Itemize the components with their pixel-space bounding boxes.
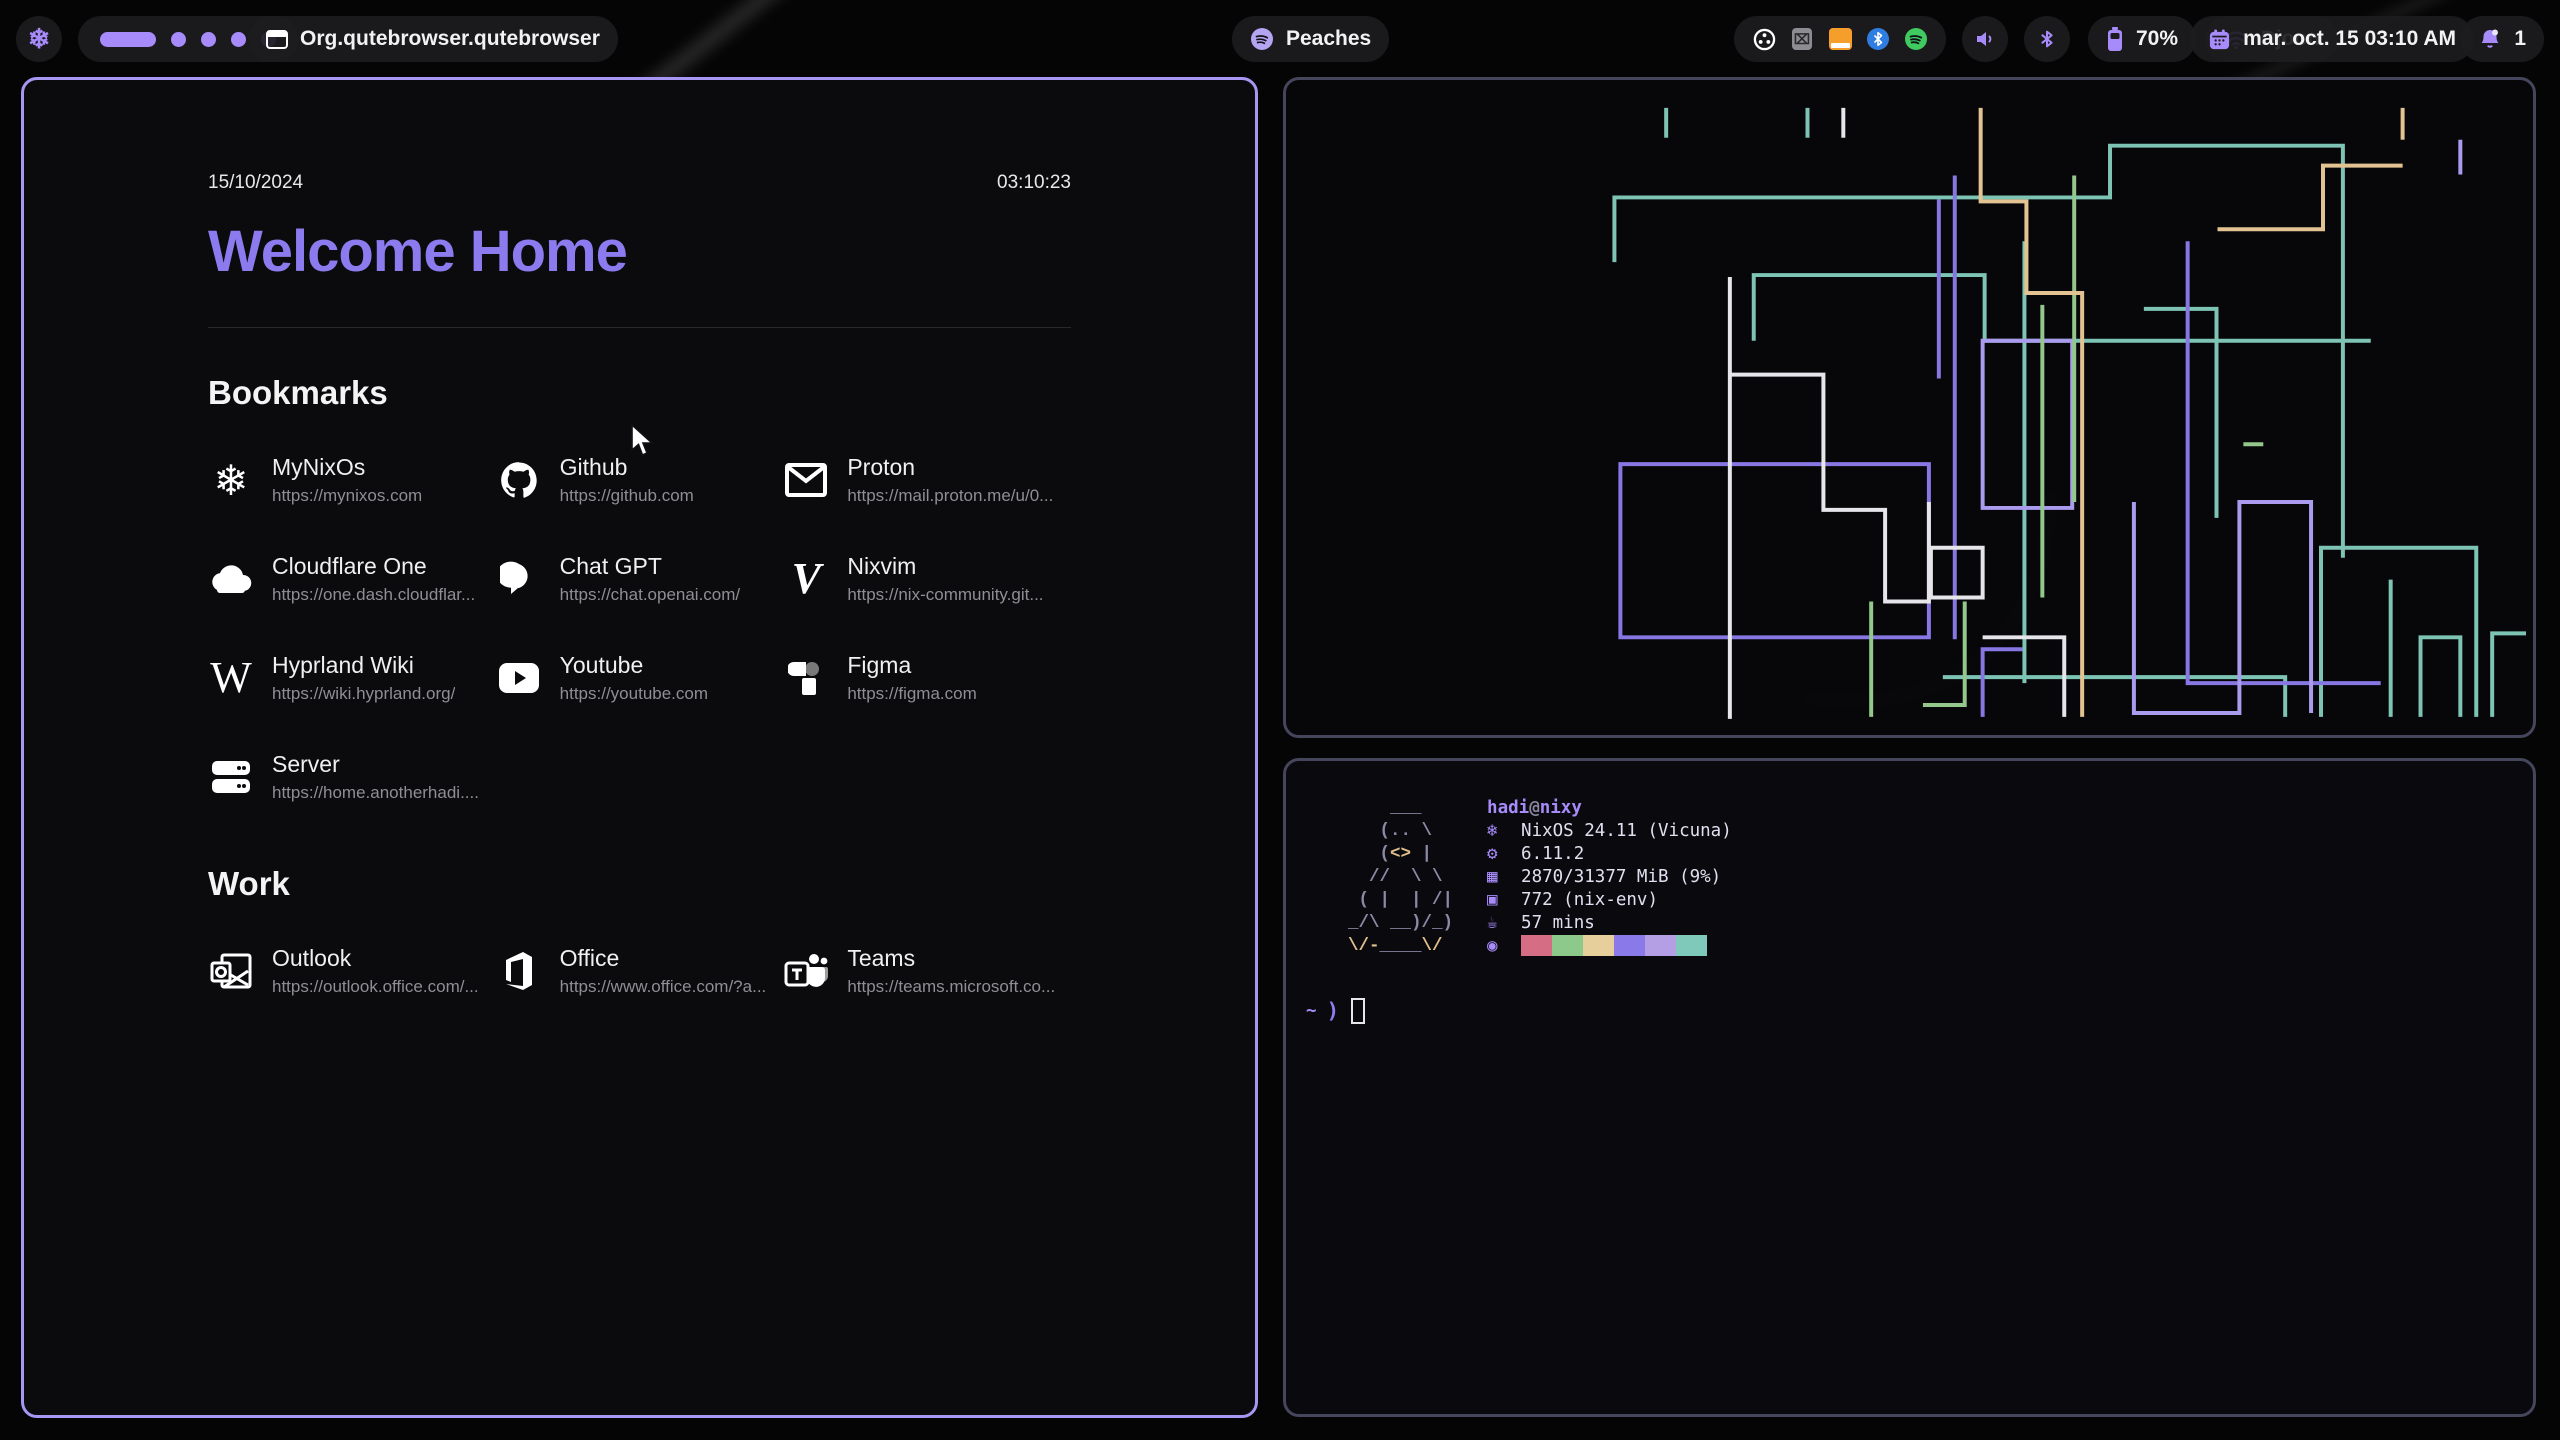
obs-tray-icon[interactable] — [1752, 27, 1776, 51]
fetch-palette-row: ◉ — [1487, 935, 1732, 958]
notifications-widget[interactable]: 1 — [2460, 16, 2544, 62]
spotify-icon — [1250, 27, 1274, 51]
divider — [208, 327, 1071, 328]
swatch-teal — [1676, 935, 1707, 956]
bookmark-outlook[interactable]: Outlook https://outlook.office.com/... — [208, 945, 496, 997]
window-icon — [266, 30, 288, 49]
volume-widget[interactable] — [1962, 16, 2008, 62]
startpage-clock: 03:10:23 — [997, 172, 1071, 194]
work-grid: Outlook https://outlook.office.com/... O… — [208, 945, 1071, 997]
swatch-green — [1552, 935, 1583, 956]
nixos-launcher-button[interactable]: ❄ — [16, 16, 62, 62]
bookmark-figma[interactable]: Figma https://figma.com — [783, 652, 1071, 704]
workspace-active[interactable] — [100, 32, 156, 47]
swatch-tan — [1583, 935, 1614, 956]
figma-icon — [783, 655, 829, 701]
bookmarks-grid: ❄ MyNixOs https://mynixos.com Github htt… — [208, 454, 1071, 803]
qutebrowser-window[interactable]: 15/10/2024 03:10:23 Welcome Home Bookmar… — [21, 77, 1258, 1418]
nix-snowflake-icon: ❄ — [1487, 820, 1521, 843]
fetch-memory-row: ▦ 2870/31377 MiB (9%) — [1487, 866, 1732, 889]
workspace-dot[interactable] — [171, 32, 186, 47]
bookmark-hyprland-wiki[interactable]: W Hyprland Wiki https://wiki.hyprland.or… — [208, 652, 496, 704]
prompt-symbol: ) — [1327, 1000, 1340, 1023]
github-icon — [496, 457, 542, 503]
letter-w-icon: W — [208, 655, 254, 701]
clock-widget[interactable]: mar. oct. 15 03:10 AM — [2190, 16, 2474, 62]
swatch-red — [1521, 935, 1552, 956]
bell-icon — [2478, 27, 2502, 51]
fetch-uptime-row: ☕ 57 mins — [1487, 912, 1732, 935]
swatch-lavender — [1645, 935, 1676, 956]
window-title: Org.qutebrowser.qutebrowser — [300, 27, 600, 51]
uptime-icon: ☕ — [1487, 912, 1521, 935]
pipes-terminal-window[interactable] — [1283, 77, 2536, 738]
pipes-art — [1286, 80, 2533, 738]
color-swatches — [1521, 935, 1707, 958]
prompt-path: ~ — [1306, 1000, 1317, 1023]
speaker-icon — [1973, 27, 1997, 51]
file-manager-tray-icon[interactable] — [1828, 27, 1852, 51]
page-title: Welcome Home — [208, 218, 1071, 285]
teams-icon — [783, 948, 829, 994]
startpage: 15/10/2024 03:10:23 Welcome Home Bookmar… — [24, 80, 1255, 1415]
fetch-os-row: ❄ NixOS 24.11 (Vicuna) — [1487, 820, 1732, 843]
tux-ascii-art: ___ (.. \ (<> | // \ \ ( | | /| _/\ __)/… — [1348, 797, 1453, 958]
bluetooth-widget[interactable] — [2024, 16, 2070, 62]
status-bar: ❄ Org.qutebrowser.qutebrowser Peaches — [0, 0, 2560, 72]
nix-snowflake-icon: ❄ — [28, 26, 51, 53]
window-title-widget[interactable]: Org.qutebrowser.qutebrowser — [248, 16, 618, 62]
youtube-icon — [496, 655, 542, 701]
letter-v-icon: V — [783, 556, 829, 602]
battery-widget[interactable]: 70% — [2088, 16, 2196, 62]
keepass-tray-icon[interactable] — [1790, 27, 1814, 51]
cloud-icon — [208, 556, 254, 602]
workspace-dot[interactable] — [201, 32, 216, 47]
terminal-cursor — [1351, 998, 1365, 1024]
media-widget[interactable]: Peaches — [1232, 16, 1389, 62]
shell-prompt[interactable]: ~ ) — [1306, 998, 2513, 1024]
memory-icon: ▦ — [1487, 866, 1521, 889]
bookmark-proton[interactable]: Proton https://mail.proton.me/u/0... — [783, 454, 1071, 506]
swatch-purple — [1614, 935, 1645, 956]
section-title-work: Work — [208, 865, 1071, 903]
office-icon — [496, 948, 542, 994]
bookmark-mynixos[interactable]: ❄ MyNixOs https://mynixos.com — [208, 454, 496, 506]
battery-icon — [2106, 26, 2124, 52]
clock-label: mar. oct. 15 03:10 AM — [2243, 27, 2456, 51]
server-icon — [208, 754, 254, 800]
bookmark-teams[interactable]: Teams https://teams.microsoft.co... — [783, 945, 1071, 997]
system-tray[interactable] — [1734, 16, 1946, 62]
fastfetch-output: ___ (.. \ (<> | // \ \ ( | | /| _/\ __)/… — [1306, 781, 2513, 958]
bluetooth-icon — [2036, 28, 2058, 50]
palette-icon: ◉ — [1487, 935, 1521, 958]
bookmark-server[interactable]: Server https://home.anotherhadi.... — [208, 751, 496, 803]
outlook-icon — [208, 948, 254, 994]
bookmark-office[interactable]: Office https://www.office.com/?a... — [496, 945, 784, 997]
bluetooth-tray-icon[interactable] — [1866, 27, 1890, 51]
kernel-icon: ⚙ — [1487, 843, 1521, 866]
section-title-bookmarks: Bookmarks — [208, 374, 1071, 412]
workspace-dot[interactable] — [231, 32, 246, 47]
bookmark-nixvim[interactable]: V Nixvim https://nix-community.git... — [783, 553, 1071, 605]
bookmark-chatgpt[interactable]: Chat GPT https://chat.openai.com/ — [496, 553, 784, 605]
notification-count: 1 — [2514, 27, 2526, 51]
bookmark-cloudflare-one[interactable]: Outlook Cloudflare One https://one.dash.… — [208, 553, 496, 605]
nix-snowflake-icon: ❄ — [208, 457, 254, 503]
startpage-date: 15/10/2024 — [208, 172, 303, 194]
fetch-terminal-window[interactable]: ___ (.. \ (<> | // \ \ ( | | /| _/\ __)/… — [1283, 758, 2536, 1417]
battery-percent: 70% — [2136, 27, 2178, 51]
bookmark-github[interactable]: Github https://github.com — [496, 454, 784, 506]
calendar-icon — [2208, 28, 2231, 51]
fetch-packages-row: ▣ 772 (nix-env) — [1487, 889, 1732, 912]
packages-icon: ▣ — [1487, 889, 1521, 912]
fetch-kernel-row: ⚙ 6.11.2 — [1487, 843, 1732, 866]
media-track-label: Peaches — [1286, 27, 1371, 51]
chat-bubble-icon — [496, 556, 542, 602]
fetch-user-host: hadi@nixy — [1487, 797, 1732, 820]
envelope-icon — [783, 457, 829, 503]
bookmark-youtube[interactable]: Youtube https://youtube.com — [496, 652, 784, 704]
spotify-tray-icon[interactable] — [1904, 27, 1928, 51]
mouse-cursor — [630, 424, 656, 458]
